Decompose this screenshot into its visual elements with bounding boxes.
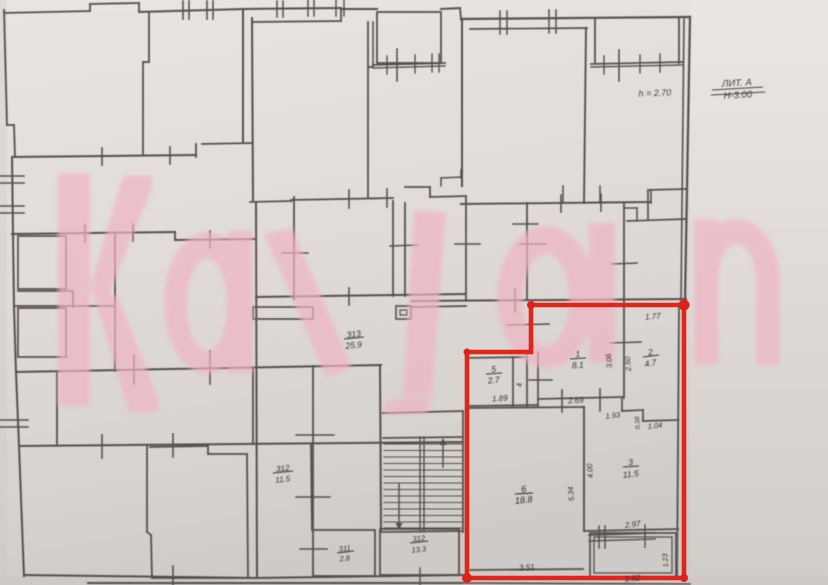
svg-text:1.77: 1.77 [645,311,662,321]
svg-text:h = 2.70: h = 2.70 [638,87,671,98]
svg-text:11.5: 11.5 [275,474,291,485]
svg-text:4.7: 4.7 [644,357,658,369]
svg-text:25.9: 25.9 [344,339,363,351]
svg-text:1.89: 1.89 [492,393,509,403]
svg-text:Н-3.00: Н-3.00 [723,89,753,102]
svg-text:2.97: 2.97 [624,519,642,530]
svg-text:0.38: 0.38 [634,416,642,429]
svg-text:3.06: 3.06 [604,352,614,368]
svg-text:2.52: 2.52 [624,573,642,584]
svg-text:18.8: 18.8 [514,494,532,506]
svg-text:8.1: 8.1 [572,360,585,371]
svg-text:2.8: 2.8 [338,553,351,563]
svg-text:2.50: 2.50 [623,355,633,372]
svg-text:5.34: 5.34 [566,486,576,501]
svg-text:2.7: 2.7 [486,374,500,385]
svg-text:1: 1 [575,349,581,359]
svg-text:4: 4 [515,383,524,388]
svg-text:13.3: 13.3 [411,544,427,555]
svg-text:1.04: 1.04 [647,421,662,431]
svg-text:3.51: 3.51 [519,562,535,572]
svg-text:1.93: 1.93 [605,410,621,421]
svg-text:4.00: 4.00 [585,462,595,478]
svg-text:6: 6 [521,484,527,494]
svg-text:2.69: 2.69 [567,395,585,405]
svg-text:1.23: 1.23 [662,553,670,567]
svg-text:11.5: 11.5 [622,468,639,480]
